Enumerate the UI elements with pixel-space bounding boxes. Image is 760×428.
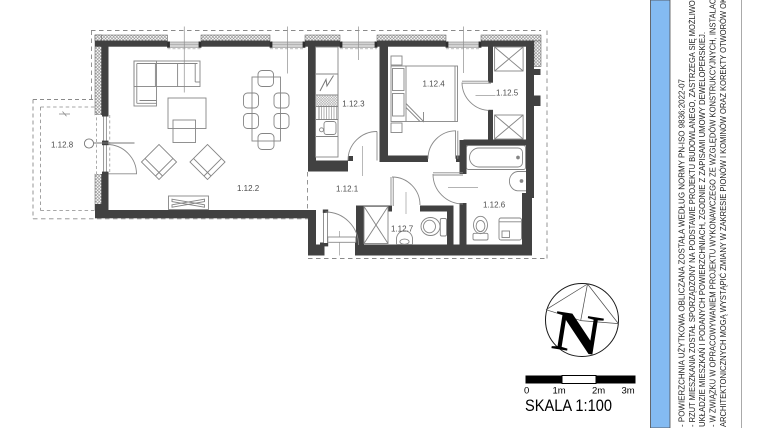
svg-text:2m: 2m bbox=[592, 386, 605, 397]
svg-text:3m: 3m bbox=[622, 386, 635, 397]
svg-text:1.12.6: 1.12.6 bbox=[483, 201, 506, 210]
svg-text:SKALA 1:100: SKALA 1:100 bbox=[525, 397, 612, 415]
svg-text:1.12.5: 1.12.5 bbox=[496, 88, 519, 97]
svg-text:UKŁADZIE MIESZKAŃ I PODANYCH P: UKŁADZIE MIESZKAŃ I PODANYCH POWIERZCHNI… bbox=[698, 32, 707, 427]
svg-text:0: 0 bbox=[524, 386, 529, 397]
svg-text:- W ZWIĄZKU W OPRACOWYWANIEM P: - W ZWIĄZKU W OPRACOWYWANIEM PROJEKTU WY… bbox=[709, 0, 718, 427]
svg-text:1.12.2: 1.12.2 bbox=[237, 184, 260, 193]
svg-text:1.12.3: 1.12.3 bbox=[342, 99, 365, 108]
svg-text:- RZUT MIESZKANIA ZOSTAŁ SPORZ: - RZUT MIESZKANIA ZOSTAŁ SPORZĄDZONY NA … bbox=[688, 0, 697, 427]
svg-text:1.12.4: 1.12.4 bbox=[423, 79, 446, 88]
svg-text:1.12.7: 1.12.7 bbox=[391, 224, 414, 233]
svg-text:N: N bbox=[548, 298, 607, 368]
svg-text:ARCHITEKTONICZNYCH MOGĄ WYSTĄP: ARCHITEKTONICZNYCH MOGĄ WYSTĄPIĆ ZMIANY … bbox=[719, 0, 728, 427]
svg-text:1.12.8: 1.12.8 bbox=[51, 140, 74, 149]
svg-text:- POWIERZCHNIA UŻYTKOWA OBLICZ: - POWIERZCHNIA UŻYTKOWA OBLICZANA ZOSTAŁ… bbox=[678, 78, 687, 427]
svg-text:1.12.1: 1.12.1 bbox=[336, 184, 359, 193]
svg-text:1m: 1m bbox=[553, 386, 566, 397]
